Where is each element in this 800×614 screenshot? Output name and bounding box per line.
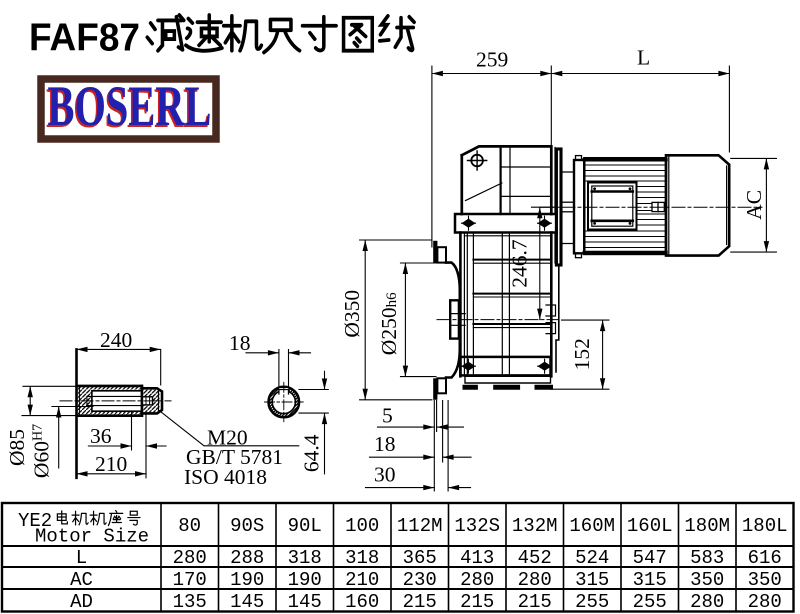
svg-text:100: 100 <box>345 515 379 537</box>
svg-text:Ø250h6: Ø250h6 <box>377 292 401 355</box>
svg-text:AD: AD <box>70 591 93 613</box>
svg-text:280: 280 <box>460 569 494 591</box>
svg-text:190: 190 <box>288 569 322 591</box>
svg-text:280: 280 <box>173 547 207 569</box>
svg-text:246.7: 246.7 <box>508 239 532 288</box>
svg-text:215: 215 <box>460 591 494 613</box>
svg-text:259: 259 <box>476 48 508 72</box>
svg-text:18: 18 <box>229 331 251 355</box>
svg-text:210: 210 <box>345 569 379 591</box>
svg-text:210: 210 <box>95 452 127 476</box>
svg-text:230: 230 <box>403 569 437 591</box>
svg-text:160L: 160L <box>627 515 673 537</box>
svg-text:18: 18 <box>374 432 396 456</box>
svg-text:36: 36 <box>90 424 112 448</box>
svg-text:288: 288 <box>230 547 264 569</box>
svg-text:145: 145 <box>230 591 264 613</box>
svg-text:FAF87: FAF87 <box>29 17 140 60</box>
svg-text:145: 145 <box>288 591 322 613</box>
svg-text:170: 170 <box>173 569 207 591</box>
svg-text:524: 524 <box>575 547 609 569</box>
svg-text:315: 315 <box>633 569 667 591</box>
svg-text:583: 583 <box>690 547 724 569</box>
svg-text:90L: 90L <box>288 515 322 537</box>
svg-text:547: 547 <box>633 547 667 569</box>
svg-text:190: 190 <box>230 569 264 591</box>
svg-text:240: 240 <box>100 328 132 352</box>
svg-text:350: 350 <box>690 569 724 591</box>
svg-text:AC: AC <box>70 569 93 591</box>
svg-text:255: 255 <box>633 591 667 613</box>
svg-text:180M: 180M <box>684 515 730 537</box>
svg-text:L: L <box>637 46 650 70</box>
svg-text:80: 80 <box>178 515 201 537</box>
svg-text:280: 280 <box>748 591 782 613</box>
svg-text:152: 152 <box>570 338 594 370</box>
svg-text:ISO 4018: ISO 4018 <box>184 465 267 489</box>
svg-text:30: 30 <box>374 463 396 487</box>
svg-text:Motor Size: Motor Size <box>35 526 149 548</box>
svg-text:L: L <box>76 547 87 569</box>
svg-text:90S: 90S <box>230 515 264 537</box>
svg-text:315: 315 <box>575 569 609 591</box>
svg-text:215: 215 <box>518 591 552 613</box>
svg-text:64.4: 64.4 <box>300 434 324 472</box>
svg-text:112M: 112M <box>397 515 443 537</box>
svg-text:5: 5 <box>382 404 393 428</box>
svg-text:Ø60H7: Ø60H7 <box>30 424 54 478</box>
svg-text:Ø350: Ø350 <box>340 290 364 338</box>
svg-text:215: 215 <box>403 591 437 613</box>
svg-text:413: 413 <box>460 547 494 569</box>
svg-text:160: 160 <box>345 591 379 613</box>
svg-text:BOSERL: BOSERL <box>48 75 212 138</box>
svg-text:Ø85: Ø85 <box>5 429 29 466</box>
svg-text:318: 318 <box>345 547 379 569</box>
svg-text:AC: AC <box>742 190 766 220</box>
svg-text:365: 365 <box>403 547 437 569</box>
svg-text:280: 280 <box>690 591 724 613</box>
svg-text:255: 255 <box>575 591 609 613</box>
svg-text:616: 616 <box>748 547 782 569</box>
svg-text:180L: 180L <box>742 515 788 537</box>
svg-text:452: 452 <box>518 547 552 569</box>
svg-text:160M: 160M <box>569 515 615 537</box>
svg-text:132M: 132M <box>512 515 558 537</box>
svg-text:350: 350 <box>748 569 782 591</box>
svg-text:318: 318 <box>288 547 322 569</box>
svg-text:280: 280 <box>518 569 552 591</box>
svg-text:135: 135 <box>173 591 207 613</box>
svg-text:132S: 132S <box>454 515 500 537</box>
